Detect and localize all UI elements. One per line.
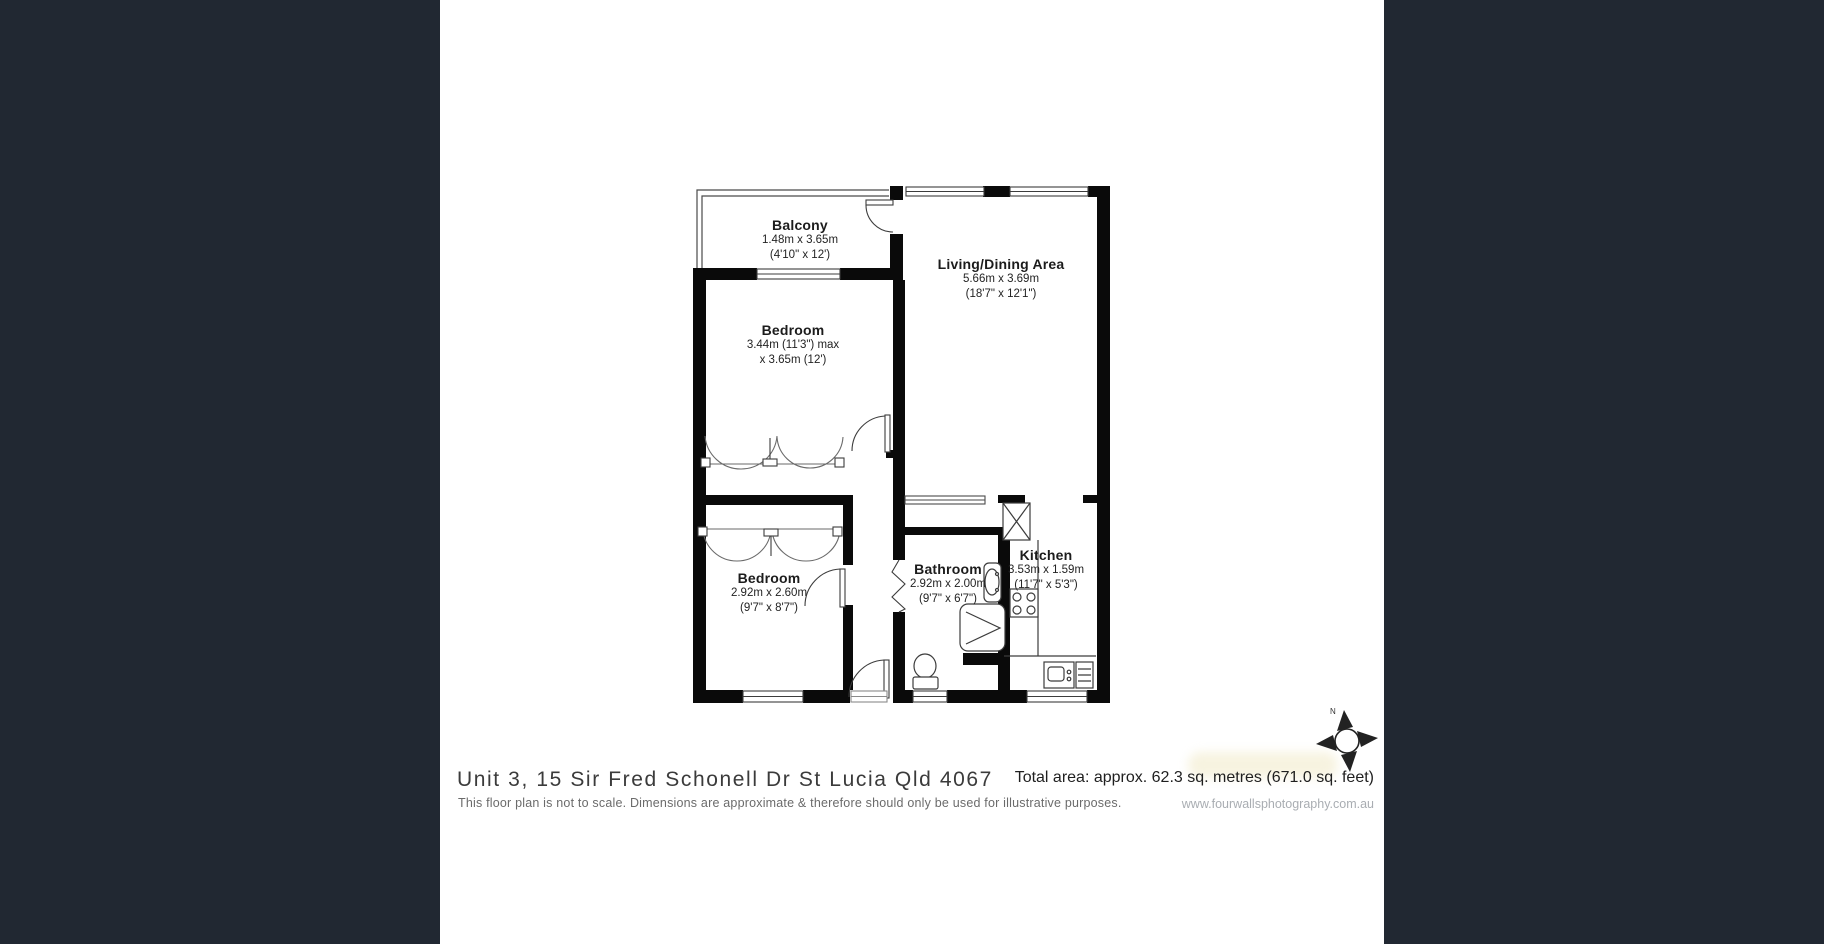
room-title: Living/Dining Area <box>938 256 1065 272</box>
room-dimensions-imperial: (18'7" x 12'1") <box>938 288 1065 302</box>
room-dimensions-metric: 1.48m x 3.65m <box>762 234 838 248</box>
room-title: Bedroom <box>731 570 807 586</box>
room-label-bathroom: Bathroom 2.92m x 2.00m (9'7" x 6'7") <box>910 561 986 606</box>
room-dimensions-imperial: x 3.65m (12') <box>747 354 839 368</box>
room-dimensions-imperial: (9'7" x 8'7") <box>731 602 807 616</box>
toilet-tank <box>913 677 938 689</box>
room-label-kitchen: Kitchen 3.53m x 1.59m (11'7" x 5'3") <box>1008 547 1084 592</box>
compass-north-label: N <box>1330 707 1336 716</box>
room-label-bedroom-2: Bedroom 2.92m x 2.60m (9'7" x 8'7") <box>731 570 807 615</box>
bedroom2-wardrobe <box>698 527 842 561</box>
room-dimensions-metric: 5.66m x 3.69m <box>938 273 1065 287</box>
room-label-bedroom-1: Bedroom 3.44m (11'3") max x 3.65m (12') <box>747 322 839 367</box>
total-area-text: Total area: approx. 62.3 sq. metres (671… <box>1015 769 1374 787</box>
bedroom1-wardrobe <box>701 436 844 469</box>
room-title: Balcony <box>762 217 838 233</box>
room-label-balcony: Balcony 1.48m x 3.65m (4'10" x 12') <box>762 217 838 262</box>
kitchen-fixtures <box>1003 503 1096 688</box>
compass-icon: N <box>1316 707 1378 772</box>
room-title: Bathroom <box>910 561 986 577</box>
toilet-bowl <box>914 654 936 678</box>
room-label-living-dining: Living/Dining Area 5.66m x 3.69m (18'7" … <box>938 256 1065 301</box>
room-dimensions-imperial: (9'7" x 6'7") <box>910 593 986 607</box>
bathroom-opening-zigzag <box>892 560 905 612</box>
living-cupboard <box>905 496 985 504</box>
room-dimensions-metric: 3.53m x 1.59m <box>1008 564 1084 578</box>
photographer-website: www.fourwallsphotography.com.au <box>1182 797 1374 811</box>
room-dimensions-metric: 3.44m (11'3") max <box>747 339 839 353</box>
property-address: Unit 3, 15 Sir Fred Schonell Dr St Lucia… <box>457 768 993 792</box>
room-title: Bedroom <box>747 322 839 338</box>
room-title: Kitchen <box>1008 547 1084 563</box>
room-dimensions-metric: 2.92m x 2.00m <box>910 578 986 592</box>
room-dimensions-metric: 2.92m x 2.60m <box>731 587 807 601</box>
room-dimensions-imperial: (11'7" x 5'3") <box>1008 579 1084 593</box>
disclaimer-text: This floor plan is not to scale. Dimensi… <box>458 796 1122 810</box>
room-dimensions-imperial: (4'10" x 12') <box>762 249 838 263</box>
